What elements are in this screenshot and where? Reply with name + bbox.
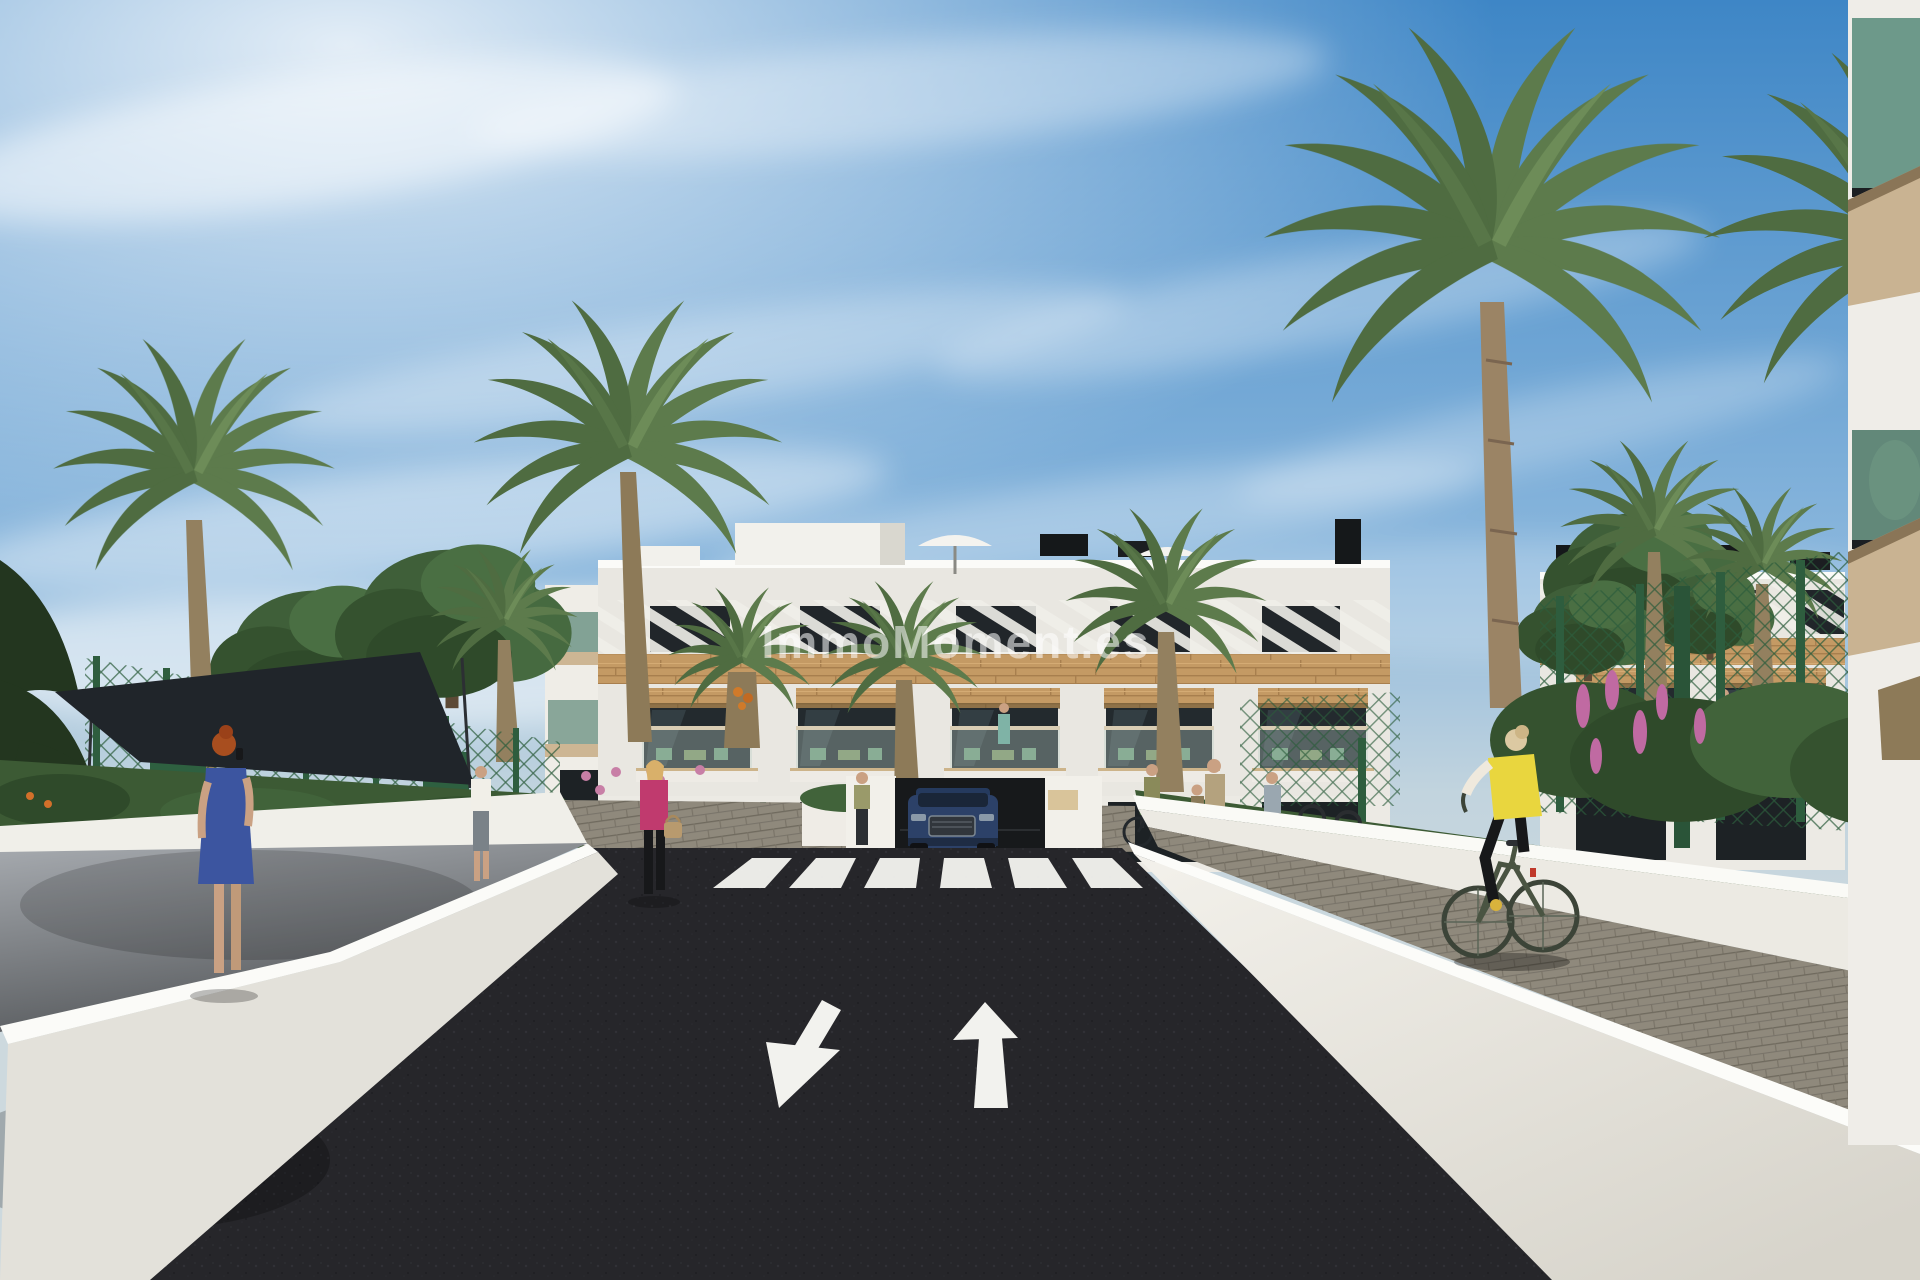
white-tshirt [471,779,491,811]
handbag [664,822,682,838]
watermark: ImmoMoment.es [762,616,1151,668]
render-scene: ImmoMoment.es [0,0,1920,1280]
phone [236,748,243,760]
tail-reflector [1530,868,1536,877]
render-image: ImmoMoment.es [0,0,1920,1280]
palm-trunk-corner [1878,676,1920,760]
grille [929,816,975,836]
entrance-sign [1048,790,1078,810]
windshield [918,793,988,807]
cyclist-shoe [1490,899,1502,911]
balcony-person [998,703,1010,744]
headlight [911,814,926,821]
yellow-vest [1488,754,1542,820]
woman-with-bike [1264,785,1281,813]
headlight [979,814,994,821]
building-foreground-right [1848,0,1920,1145]
pink-jacket [640,780,668,830]
balcony-glass [1852,18,1920,194]
